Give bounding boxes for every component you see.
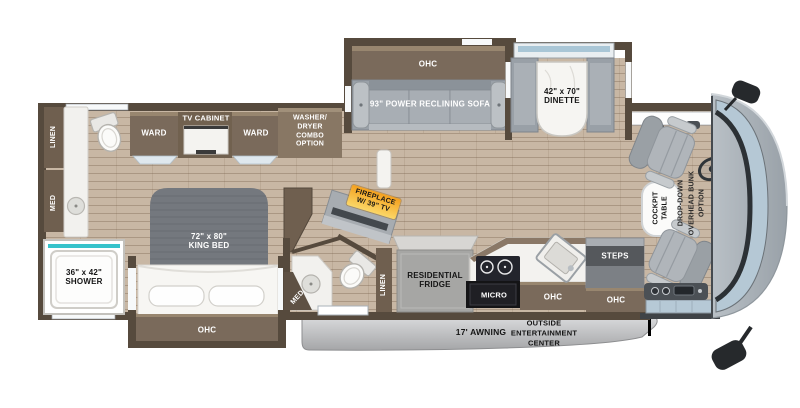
tv-inset <box>184 126 228 154</box>
label-tv-cabinet: TV CABINET <box>171 115 241 124</box>
label-fridge: RESIDENTIAL FRIDGE <box>407 271 463 289</box>
label-outside-entertainment: OUTSIDE ENTERTAINMENT CENTER <box>511 318 577 347</box>
label-washer-dryer: WASHER/ DRYER COMBO OPTION <box>293 115 327 150</box>
label-ward-right: WARD <box>243 128 268 137</box>
label-med-rear: MED <box>50 195 58 211</box>
dash-console <box>644 283 708 300</box>
mid-bath-door <box>318 306 368 315</box>
valance-left <box>133 156 177 164</box>
mattress <box>150 188 268 270</box>
label-overhead-bunk: DROP-DOWN OVERHEAD BUNK OPTION <box>676 171 708 235</box>
mirror-bottom <box>709 327 751 373</box>
pillow-right <box>209 286 264 306</box>
label-ohc-entry: OHC <box>607 295 625 304</box>
entry-well <box>646 300 716 313</box>
label-awning: 17' AWNING <box>456 328 506 338</box>
king-bed <box>138 188 278 315</box>
rear-toilet <box>90 112 126 155</box>
label-linen-mid-bath: LINEN <box>380 274 388 296</box>
label-steps: STEPS <box>601 251 628 260</box>
label-king-bed: 72" x 80" KING BED <box>189 232 230 250</box>
dinette-bench-right <box>587 58 614 132</box>
valance-right <box>233 156 277 164</box>
label-ohc-kitchen: OHC <box>544 292 562 301</box>
label-shower: 36" x 42" SHOWER <box>65 268 102 286</box>
label-micro: MICRO <box>481 292 507 301</box>
pillow-left <box>149 286 204 306</box>
dinette-bench-left <box>511 58 538 132</box>
sofa-slideout <box>344 38 516 133</box>
label-ohc-bed: OHC <box>198 325 216 334</box>
label-cockpit-table: COCKPIT TABLE <box>652 192 671 225</box>
label-sofa: 93" POWER RECLINING SOFA <box>330 99 530 108</box>
label-ward-left: WARD <box>141 128 166 137</box>
midbath-diag-wall-2 <box>292 238 340 252</box>
bedroom-door <box>377 150 391 188</box>
rv-floorplan: OHC 93" POWER RECLINING SOFA 42" x 70" D… <box>0 0 800 408</box>
front-cap <box>709 78 787 372</box>
label-dinette: 42" x 70" DINETTE <box>544 87 580 105</box>
label-linen-rear: LINEN <box>50 126 58 148</box>
rear-vanity <box>64 107 88 237</box>
label-ohc-sofa: OHC <box>419 59 437 68</box>
